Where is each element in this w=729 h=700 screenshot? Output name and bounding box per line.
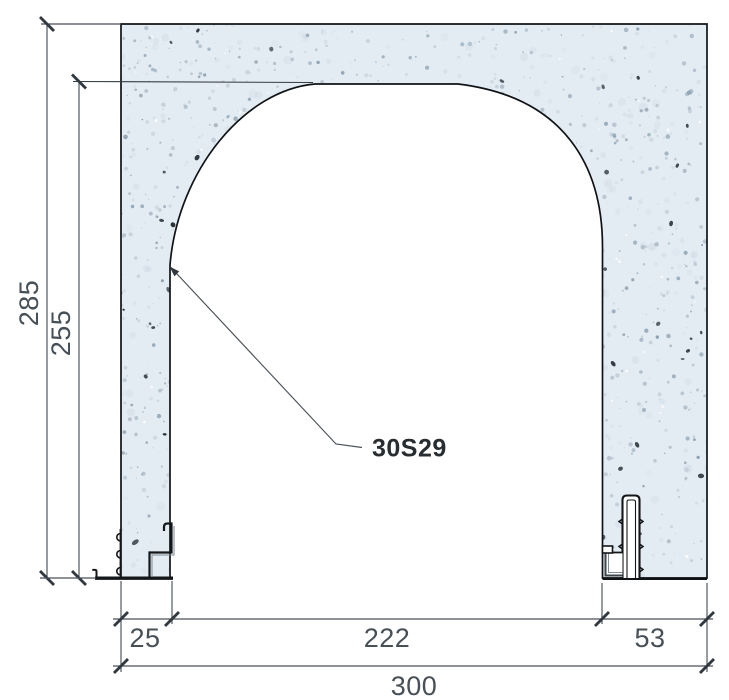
dim-value-300: 300	[391, 671, 438, 700]
dim-value-25: 25	[129, 623, 160, 653]
track-clip-stub	[603, 546, 613, 553]
dimension-overall-width: 300	[113, 659, 714, 700]
dimension-opening-height: 255	[46, 75, 86, 586]
dim-value-285: 285	[14, 280, 44, 327]
leader-line	[171, 267, 363, 448]
arch-profile-drawing: 285 255 25 222 53 300 30S29	[0, 0, 729, 700]
technical-drawing-svg: 285 255 25 222 53 300 30S29	[0, 0, 729, 700]
profile-label: 30S29	[372, 435, 447, 463]
dimension-overall-height: 285	[14, 17, 121, 585]
leader-30S29: 30S29	[170, 267, 447, 463]
wall-section	[119, 23, 710, 581]
wall-fill	[121, 24, 707, 578]
channel-slot-fill	[623, 496, 640, 579]
dim-value-222: 222	[364, 623, 411, 653]
dimension-bottom-chain: 25 222 53	[113, 581, 714, 672]
dim-value-53: 53	[634, 623, 665, 653]
dim-value-255: 255	[46, 310, 76, 357]
profile-flange-upturn	[92, 570, 96, 578]
